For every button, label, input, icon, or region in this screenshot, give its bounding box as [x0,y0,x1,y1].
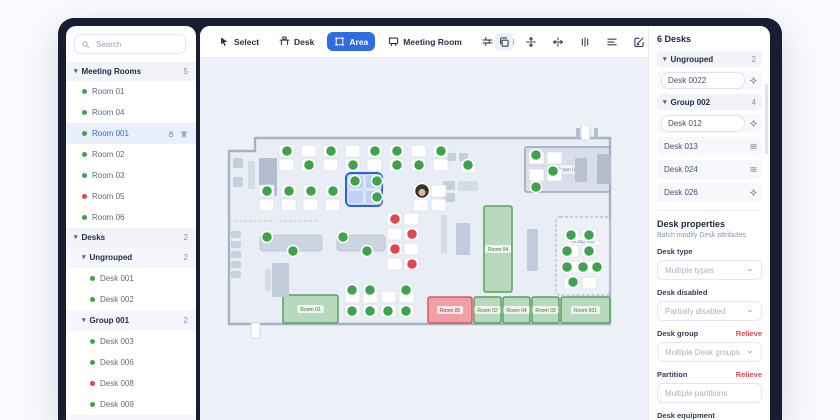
field-label: Desk equipment [657,411,715,420]
align-lines-button[interactable] [603,33,621,51]
status-dot-green [463,160,474,171]
align-horizontal-icon [552,36,564,48]
label: Room 06 [92,213,124,222]
desk[interactable] [547,152,562,164]
status-dot-green [372,192,383,203]
room-label: Room 01 [300,307,321,313]
status-dot-green [90,297,95,302]
tool-label: Area [349,37,368,47]
search-icon [81,40,90,49]
align-vertical-icon [525,36,537,48]
door-tag [251,323,260,338]
status-dot-green [365,306,376,317]
selected-desk[interactable] [348,190,364,204]
status-dot-green [548,166,559,177]
status-dot-green [347,285,358,296]
label: Meeting Rooms [82,67,142,76]
chevron-down-icon [746,307,754,315]
caret-down-icon[interactable]: ▾ [74,68,78,75]
field-placeholder: Multiple Desk groups [665,348,740,357]
field-placeholder: Multiple partitions [665,389,727,398]
status-dot-green [568,277,579,288]
status-dot-green [350,176,361,187]
status-dot-green [82,89,87,94]
desk[interactable] [301,145,316,157]
sidebar-item-room-05[interactable]: Room 05 [66,186,196,207]
area-icon [334,36,345,47]
sidebar-item-desk-006[interactable]: Desk 006 [66,352,196,373]
desk[interactable] [431,185,446,197]
desk[interactable] [433,159,448,171]
field-label-row: Desk type [657,247,762,256]
caret-down-icon[interactable]: ▾ [74,234,78,241]
status-dot-green [82,152,87,157]
sidebar-item-desk-002[interactable]: Desk 002 [66,289,196,310]
locate-icon[interactable] [749,119,758,128]
status-dot-red [90,381,95,386]
status-dot-green [90,276,95,281]
row-actions [167,130,188,138]
furniture [527,229,538,271]
label: Room 05 [92,192,124,201]
room-label: Room 05 [440,308,461,314]
meeting-room-icon [388,36,399,47]
desk[interactable] [323,159,338,171]
sidebar-section-meeting-rooms[interactable]: ▾Meeting Rooms5 [66,62,196,81]
desk[interactable] [259,199,274,211]
status-dot-green [304,160,315,171]
field-placeholder: Partially disabled [665,307,725,316]
furniture [575,158,587,182]
status-dot-green [328,186,339,197]
chevron-down-icon [746,266,754,274]
room-label: Room 001 [574,308,597,314]
tool-label: Desk [294,37,314,47]
align-vertical-button[interactable] [522,33,540,51]
toolbar: SelectDeskAreaMeeting RoomWall [200,26,648,58]
status-dot-green [362,246,373,257]
label: Room 04 [92,108,124,117]
sidebar-item-desk-001[interactable]: Desk 001 [66,268,196,289]
right-panel: 6 Desks ▾Ungrouped2Desk 0022▾Group 0024D… [648,26,770,420]
field-label-row: Desk disabled [657,288,762,297]
status-dot-green [584,230,595,241]
panel-group-group-002[interactable]: ▾Group 0024 [657,94,762,110]
status-dot-green [436,146,447,157]
label: Group 001 [90,316,130,325]
status-dot-green [82,215,87,220]
panel-desk-row-desk-0022[interactable]: Desk 0022 [657,71,762,90]
count-badge: 2 [184,316,188,325]
sidebar-item-room-001[interactable]: Room 001 [66,123,196,144]
sidebar-section-desks[interactable]: ▾Desks2 [66,228,196,247]
label: Desk 008 [100,379,134,388]
status-dot-green [578,262,589,273]
status-dot-green [370,146,381,157]
desk[interactable] [404,243,419,255]
furniture [233,158,243,168]
furniture [265,269,271,291]
search-box[interactable] [74,34,186,54]
sidebar-item-desk-009[interactable]: Desk 009 [66,394,196,415]
caret-down-icon[interactable]: ▾ [82,254,86,261]
distribute-icon [579,36,591,48]
status-dot-red [82,194,87,199]
edit-icon [633,36,645,48]
status-dot-green [392,160,403,171]
field-select-desk-disabled[interactable]: Partially disabled [657,301,762,321]
status-dot-green [531,150,542,161]
relieve-link[interactable]: Relieve [736,329,762,338]
desk[interactable] [431,199,446,211]
sidebar-item-room-04[interactable]: Room 04 [66,102,196,123]
sidebar-item-room-03[interactable]: Room 03 [66,165,196,186]
door-tag [581,125,590,140]
panel-title: 6 Desks [657,34,762,44]
distribute-button[interactable] [576,33,594,51]
sidebar-subgroup-ungrouped[interactable]: ▾Ungrouped2 [66,247,196,268]
desk[interactable] [413,199,428,211]
room-label: Room 04 [488,247,509,253]
status-dot-green [372,176,383,187]
status-dot-green [262,186,273,197]
desk-name-input[interactable]: Desk 0022 [661,72,745,89]
status-dot-green [584,246,595,257]
status-dot-green [592,262,603,273]
desk-name-label: Desk 026 [661,188,745,197]
status-dot-red [407,259,418,270]
search-input[interactable] [94,39,178,50]
edit-button[interactable] [630,33,648,51]
trash-icon[interactable] [180,130,188,138]
align-lines-icon [606,36,618,48]
count-badge: 2 [184,233,188,242]
tool-meeting-room[interactable]: Meeting Room [381,32,469,51]
tool-label: Meeting Room [403,37,462,47]
sidebar-subgroup-group-001[interactable]: ▾Group 0012 [66,310,196,331]
panel-scrollbar[interactable] [765,84,768,154]
furniture [456,223,470,255]
sidebar-subgroup-group-002[interactable]: ▾Group 0022 [66,415,196,420]
sidebar-tree: ▾Meeting Rooms5Room 01Room 04Room 001Roo… [66,62,196,420]
status-dot-green [288,246,299,257]
duplicate-icon [498,36,510,48]
desk[interactable] [387,228,402,240]
desk-icon [279,36,290,47]
desk-name-label: Desk 013 [661,142,745,151]
field-placeholder: Multiple types [665,266,714,275]
count-badge: 5 [184,67,188,76]
label: Desks [82,233,106,242]
sidebar-item-room-06[interactable]: Room 06 [66,207,196,228]
status-dot-green [347,306,358,317]
furniture [458,181,478,191]
desk[interactable] [404,213,419,225]
status-dot-green [562,262,573,273]
desk[interactable] [325,199,340,211]
tool-desk[interactable]: Desk [272,32,321,51]
status-dot-green [383,306,394,317]
label: Room 03 [92,171,124,180]
desk-properties-subtitle: Batch modify Desk attributes [657,232,762,239]
locate-icon[interactable] [749,76,758,85]
field-label-row: Desk equipment [657,411,762,420]
status-dot-green [562,246,573,257]
wall-icon [482,36,493,47]
status-dot-green [82,173,87,178]
desk-name-label: Desk 024 [661,165,745,174]
furniture [441,215,447,253]
panel-desk-row-desk-013[interactable]: Desk 013 [657,137,762,156]
furniture [233,177,243,187]
tool-label: Select [234,37,259,47]
locate-icon[interactable] [749,188,758,197]
lock-icon[interactable] [167,130,175,138]
furniture [231,261,241,268]
main-area: SelectDeskAreaMeeting RoomWall Room 06Ro… [200,26,770,420]
status-dot-green [365,285,376,296]
desk[interactable] [411,145,426,157]
floorplan: Room 06Room 04Room 01Room 05Room 02Room … [215,125,635,340]
furniture [272,263,289,297]
label: Room 01 [92,87,124,96]
field-label: Desk type [657,247,692,256]
status-dot-green [284,186,295,197]
label: Ungrouped [90,253,133,262]
desk[interactable] [281,199,296,211]
furniture [231,241,241,248]
status-dot-green [401,306,412,317]
field-label: Partition [657,370,687,379]
status-dot-green [531,182,542,193]
furniture [231,271,241,278]
status-dot-green [90,360,95,365]
desk[interactable] [279,159,294,171]
status-dot-green [262,232,273,243]
desk-properties-title: Desk properties [657,219,762,229]
status-dot-green [566,230,577,241]
status-dot-green [338,232,349,243]
label: Desk 003 [100,337,134,346]
count-badge: 4 [752,98,756,107]
field-select-desk-group[interactable]: Multiple Desk groups [657,342,762,362]
user-avatar-face [418,189,425,196]
panel-group-ungrouped[interactable]: ▾Ungrouped2 [657,51,762,67]
room-label: Room 02 [477,308,498,314]
desk[interactable] [367,159,382,171]
label: Desk 001 [100,274,134,283]
count-badge: 2 [752,55,756,64]
caret-down-icon[interactable]: ▾ [663,56,667,63]
status-dot-green [90,339,95,344]
drag-handle-icon[interactable] [749,165,758,174]
relieve-link[interactable]: Relieve [736,370,762,379]
furniture [231,251,241,258]
sidebar-item-room-01[interactable]: Room 01 [66,81,196,102]
cursor-icon [219,36,230,47]
caret-down-icon[interactable]: ▾ [82,317,86,324]
duplicate-button[interactable] [495,33,513,51]
divider [657,210,762,211]
desk[interactable] [303,199,318,211]
sidebar-item-desk-008[interactable]: Desk 008 [66,373,196,394]
panel-desk-row-desk-012[interactable]: Desk 012 [657,114,762,133]
field-label: Desk group [657,329,698,338]
group-label: Group 002 [671,98,711,107]
status-dot-green [82,110,87,115]
count-badge: 2 [184,253,188,262]
status-dot-green [414,160,425,171]
field-label-row: PartitionRelieve [657,370,762,379]
field-select-partition[interactable]: Multiple partitions [657,383,762,403]
label: Room 02 [92,150,124,159]
desk[interactable] [345,145,360,157]
status-dot-red [390,214,401,225]
label: Desk 009 [100,400,134,409]
desk-name-input[interactable]: Desk 012 [661,115,745,132]
desk[interactable] [387,258,402,270]
room-label: Room 04 [506,308,527,314]
field-select-desk-type[interactable]: Multiple types [657,260,762,280]
label: Desk 002 [100,295,134,304]
status-dot-green [82,131,87,136]
caret-down-icon[interactable]: ▾ [663,99,667,106]
chevron-down-icon [746,348,754,356]
status-dot-green [282,146,293,157]
status-dot-red [390,244,401,255]
panel-desk-row-desk-024[interactable]: Desk 024 [657,160,762,179]
field-label-row: Desk groupRelieve [657,329,762,338]
desk[interactable] [381,291,396,303]
room-label: Room 03 [535,308,556,314]
group-label: Ungrouped [671,55,714,64]
status-dot-green [348,160,359,171]
drag-handle-icon[interactable] [749,142,758,151]
door-stub [594,128,598,138]
floorplan-canvas[interactable]: Room 06Room 04Room 01Room 05Room 02Room … [200,58,648,420]
sidebar: ▾Meeting Rooms5Room 01Room 04Room 001Roo… [66,26,196,420]
sidebar-item-desk-003[interactable]: Desk 003 [66,331,196,352]
label: Desk 006 [100,358,134,367]
status-dot-green [306,186,317,197]
status-dot-red [407,229,418,240]
furniture [248,161,255,189]
tool-select[interactable]: Select [212,32,266,51]
status-dot-green [401,285,412,296]
status-dot-green [90,402,95,407]
desk[interactable] [529,169,544,181]
status-dot-green [392,146,403,157]
door-stub [576,128,580,138]
desk[interactable] [582,277,597,289]
label: Room 001 [92,129,129,138]
tool-area[interactable]: Area [327,32,375,51]
status-dot-green [326,146,337,157]
field-label: Desk disabled [657,288,707,297]
sidebar-item-room-02[interactable]: Room 02 [66,144,196,165]
furniture [597,154,611,184]
furniture [231,231,241,238]
panel-desk-row-desk-026[interactable]: Desk 026 [657,183,762,202]
align-horizontal-button[interactable] [549,33,567,51]
